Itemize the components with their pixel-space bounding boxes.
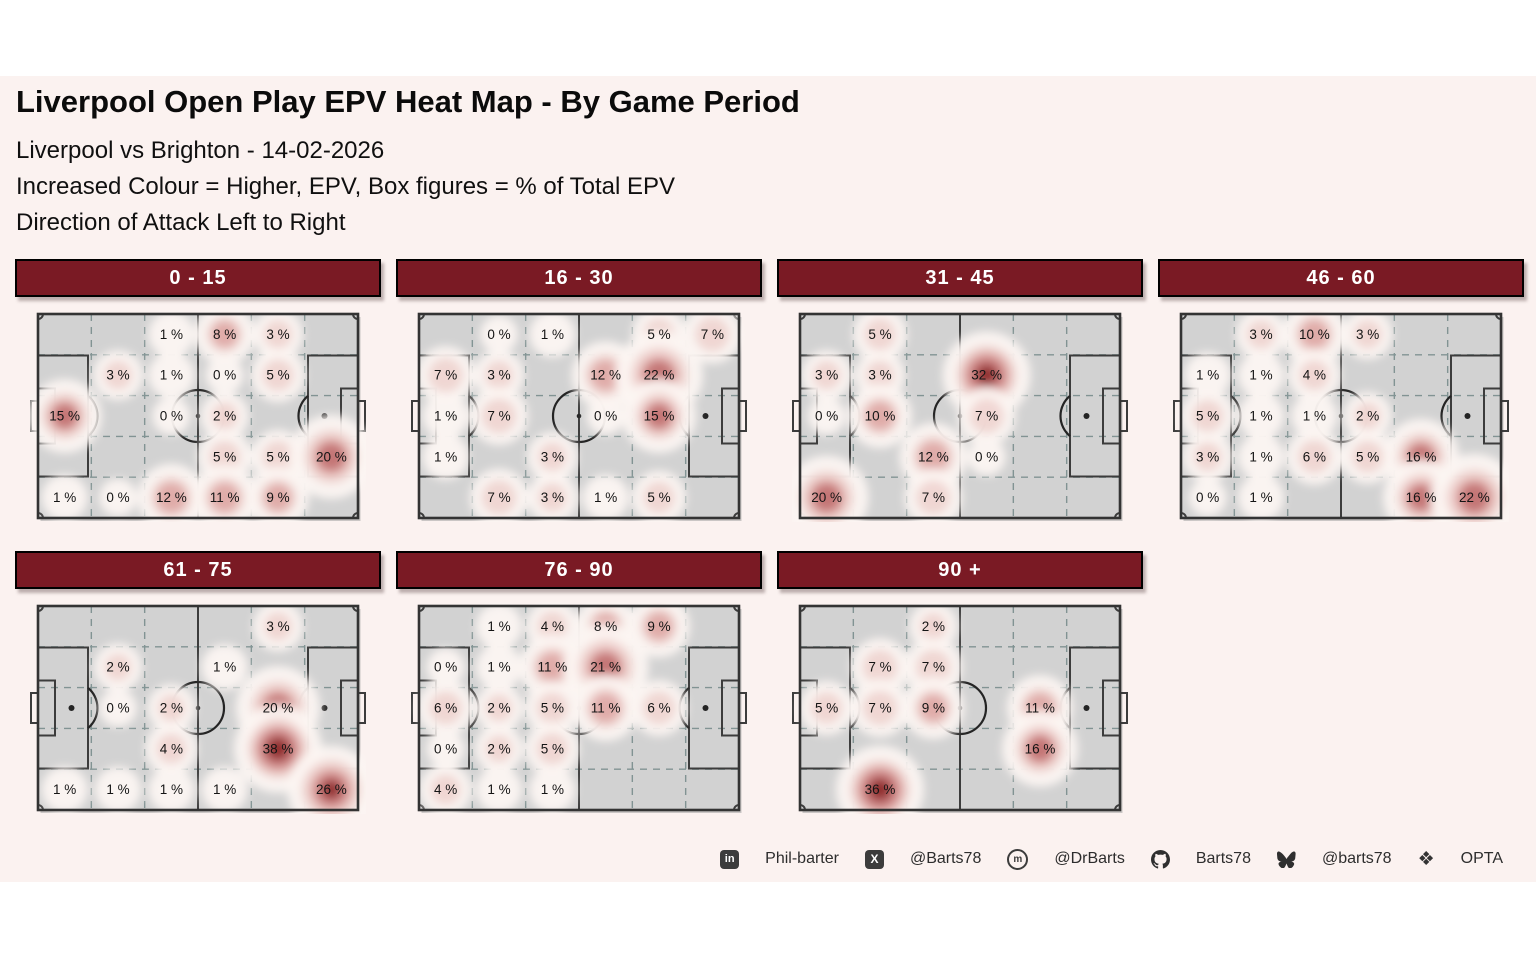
cell-label: 2 % — [106, 660, 129, 675]
cell-label: 5 % — [213, 449, 236, 464]
cell-label: 1 % — [541, 782, 564, 797]
cell-label: 5 % — [266, 368, 289, 383]
cell-label: 1 % — [1249, 490, 1272, 505]
cell-label: 11 % — [537, 660, 567, 675]
subtitle-match: Liverpool vs Brighton - 14-02-2026 — [16, 133, 800, 169]
pitch-container: 2 %7 %7 %5 %7 %9 %11 %16 %36 % — [792, 602, 1128, 814]
period-panel: 61 - 75 3 %2 %1 %0 %2 %20 %4 %38 %1 %1 %… — [15, 551, 381, 814]
cell-label: 1 % — [541, 327, 564, 342]
cell-label: 21 % — [590, 660, 621, 675]
cell-label: 4 % — [1303, 368, 1326, 383]
title-block: Liverpool Open Play EPV Heat Map - By Ga… — [16, 84, 800, 241]
bluesky-icon — [1277, 851, 1296, 868]
pitch-heatmap: 3 %10 %3 %1 %1 %4 %5 %1 %1 %2 %3 %1 %6 %… — [1173, 310, 1509, 522]
linkedin-icon: in — [720, 850, 739, 869]
cell-label: 12 % — [156, 490, 187, 505]
cell-label: 22 % — [644, 368, 675, 383]
cell-label: 1 % — [1303, 409, 1326, 424]
page-title: Liverpool Open Play EPV Heat Map - By Ga… — [16, 84, 800, 120]
cell-label: 5 % — [647, 490, 670, 505]
cell-label: 3 % — [1249, 327, 1272, 342]
pitch-container: 1 %8 %3 %3 %1 %0 %5 %15 %0 %2 %5 %5 %20 … — [30, 310, 366, 522]
cell-label: 9 % — [647, 619, 670, 634]
cell-label: 7 % — [868, 701, 891, 716]
period-header: 90 + — [777, 551, 1143, 589]
period-header: 16 - 30 — [396, 259, 762, 297]
cell-label: 22 % — [1459, 490, 1490, 505]
cell-label: 5 % — [815, 701, 838, 716]
footer-handle: @Barts78 — [910, 850, 981, 868]
cell-label: 1 % — [106, 782, 129, 797]
cell-label: 16 % — [1406, 490, 1437, 505]
cell-label: 3 % — [868, 368, 891, 383]
cell-label: 1 % — [53, 782, 76, 797]
cell-label: 5 % — [541, 701, 564, 716]
cell-label: 11 % — [1025, 701, 1055, 716]
cell-label: 7 % — [434, 368, 457, 383]
cell-label: 16 % — [1406, 449, 1437, 464]
github-icon — [1151, 850, 1170, 869]
cell-label: 0 % — [106, 701, 129, 716]
cell-label: 0 % — [434, 741, 457, 756]
cell-label: 1 % — [594, 490, 617, 505]
period-header: 46 - 60 — [1158, 259, 1524, 297]
cell-label: 16 % — [1025, 741, 1056, 756]
cell-label: 6 % — [647, 701, 670, 716]
cell-label: 7 % — [922, 490, 945, 505]
x-icon: X — [865, 850, 884, 869]
cell-label: 9 % — [266, 490, 289, 505]
footer-handle: @DrBarts — [1054, 850, 1124, 868]
cell-label: 8 % — [594, 619, 617, 634]
cell-label: 3 % — [487, 368, 510, 383]
cell-label: 1 % — [160, 368, 183, 383]
cell-label: 20 % — [316, 449, 347, 464]
cell-label: 0 % — [160, 409, 183, 424]
period-panel: 76 - 90 1 %4 %8 %9 %0 %1 %11 %21 %6 %2 %… — [396, 551, 762, 814]
cell-label: 4 % — [160, 741, 183, 756]
cell-label: 32 % — [971, 368, 1002, 383]
pitch-container: 5 %3 %3 %32 %0 %10 %7 %12 %0 %20 %7 % — [792, 310, 1128, 522]
cell-label: 3 % — [266, 619, 289, 634]
pitch-container: 3 %10 %3 %1 %1 %4 %5 %1 %1 %2 %3 %1 %6 %… — [1173, 310, 1509, 522]
cell-label: 10 % — [865, 409, 896, 424]
pitch-container: 3 %2 %1 %0 %2 %20 %4 %38 %1 %1 %1 %1 %26… — [30, 602, 366, 814]
figure-background: Liverpool Open Play EPV Heat Map - By Ga… — [0, 76, 1536, 882]
period-header: 76 - 90 — [396, 551, 762, 589]
cell-label: 1 % — [53, 490, 76, 505]
cell-label: 8 % — [213, 327, 236, 342]
period-panel: 90 + 2 %7 %7 %5 %7 %9 %11 %16 %36 % — [777, 551, 1143, 814]
cell-label: 6 % — [1303, 449, 1326, 464]
cell-label: 26 % — [316, 782, 347, 797]
cell-label: 1 % — [1249, 368, 1272, 383]
cell-label: 3 % — [541, 449, 564, 464]
cell-label: 0 % — [213, 368, 236, 383]
cell-label: 3 % — [1356, 327, 1379, 342]
cell-label: 9 % — [922, 701, 945, 716]
cell-label: 20 % — [263, 701, 294, 716]
cell-label: 15 % — [644, 409, 675, 424]
cell-label: 1 % — [434, 409, 457, 424]
cell-label: 2 % — [922, 619, 945, 634]
period-panel: 31 - 45 5 %3 %3 %32 %0 %10 %7 %12 %0 %20… — [777, 259, 1143, 522]
cell-label: 4 % — [434, 782, 457, 797]
footer-handle: Barts78 — [1196, 850, 1251, 868]
cell-label: 3 % — [815, 368, 838, 383]
cell-label: 1 % — [213, 660, 236, 675]
pitch-container: 0 %1 %5 %7 %7 %3 %12 %22 %1 %7 %0 %15 %1… — [411, 310, 747, 522]
cell-label: 5 % — [647, 327, 670, 342]
cell-label: 6 % — [434, 701, 457, 716]
cell-label: 12 % — [590, 368, 621, 383]
cell-label: 7 % — [922, 660, 945, 675]
cell-label: 12 % — [918, 449, 949, 464]
cell-label: 3 % — [266, 327, 289, 342]
period-panel: 16 - 30 0 %1 %5 %7 %7 %3 %12 %22 %1 %7 %… — [396, 259, 762, 522]
cell-label: 1 % — [487, 619, 510, 634]
mastodon-icon: m — [1007, 849, 1028, 870]
cell-label: 5 % — [541, 741, 564, 756]
cell-label: 7 % — [975, 409, 998, 424]
cell-label: 1 % — [160, 327, 183, 342]
pitch-heatmap: 1 %8 %3 %3 %1 %0 %5 %15 %0 %2 %5 %5 %20 … — [30, 310, 366, 522]
pitch-container: 1 %4 %8 %9 %0 %1 %11 %21 %6 %2 %5 %11 %6… — [411, 602, 747, 814]
cell-label: 0 % — [1196, 490, 1219, 505]
cell-label: 7 % — [701, 327, 724, 342]
pitch-heatmap: 2 %7 %7 %5 %7 %9 %11 %16 %36 % — [792, 602, 1128, 814]
cell-label: 1 % — [487, 660, 510, 675]
cell-label: 2 % — [487, 741, 510, 756]
cell-label: 0 % — [975, 449, 998, 464]
footer-handle: @barts78 — [1322, 850, 1392, 868]
cell-label: 36 % — [865, 782, 896, 797]
dropbox-icon: ❖ — [1418, 850, 1435, 869]
period-header: 31 - 45 — [777, 259, 1143, 297]
cell-label: 1 % — [1249, 409, 1272, 424]
cell-label: 1 % — [1249, 449, 1272, 464]
cell-label: 11 % — [591, 701, 621, 716]
period-header: 0 - 15 — [15, 259, 381, 297]
cell-label: 20 % — [811, 490, 842, 505]
cell-label: 7 % — [868, 660, 891, 675]
cell-label: 3 % — [541, 490, 564, 505]
cell-label: 1 % — [1196, 368, 1219, 383]
subtitle-direction: Direction of Attack Left to Right — [16, 205, 800, 241]
cell-label: 1 % — [487, 782, 510, 797]
cell-label: 0 % — [434, 660, 457, 675]
pitch-heatmap: 1 %4 %8 %9 %0 %1 %11 %21 %6 %2 %5 %11 %6… — [411, 602, 747, 814]
cell-label: 5 % — [1196, 409, 1219, 424]
cell-label: 5 % — [266, 449, 289, 464]
cell-label: 0 % — [487, 327, 510, 342]
pitch-heatmap: 5 %3 %3 %32 %0 %10 %7 %12 %0 %20 %7 % — [792, 310, 1128, 522]
pitch-heatmap: 0 %1 %5 %7 %7 %3 %12 %22 %1 %7 %0 %15 %1… — [411, 310, 747, 522]
cell-label: 4 % — [541, 619, 564, 634]
cell-label: 0 % — [594, 409, 617, 424]
cell-label: 1 % — [213, 782, 236, 797]
cell-label: 38 % — [263, 741, 294, 756]
period-panel: 46 - 60 3 %10 %3 %1 %1 %4 %5 %1 %1 %2 %3… — [1158, 259, 1524, 522]
cell-label: 1 % — [434, 449, 457, 464]
subtitle-block: Liverpool vs Brighton - 14-02-2026 Incre… — [16, 133, 800, 241]
cell-label: 0 % — [815, 409, 838, 424]
footer-credits: inPhil-barterX@Barts78m@DrBartsBarts78@b… — [720, 848, 1503, 870]
cell-label: 7 % — [487, 409, 510, 424]
cell-label: 0 % — [106, 490, 129, 505]
cell-label: 15 % — [49, 409, 80, 424]
period-panel: 0 - 15 1 %8 %3 %3 %1 %0 %5 %15 %0 %2 %5 … — [15, 259, 381, 522]
cell-label: 1 % — [160, 782, 183, 797]
cell-label: 2 % — [213, 409, 236, 424]
period-header: 61 - 75 — [15, 551, 381, 589]
cell-label: 11 % — [210, 490, 240, 505]
cell-label: 2 % — [487, 701, 510, 716]
cell-label: 10 % — [1299, 327, 1330, 342]
cell-label: 7 % — [487, 490, 510, 505]
subtitle-legend: Increased Colour = Higher, EPV, Box figu… — [16, 169, 800, 205]
footer-handle: Phil-barter — [765, 850, 839, 868]
cell-label: 5 % — [1356, 449, 1379, 464]
cell-label: 2 % — [160, 701, 183, 716]
cell-label: 3 % — [1196, 449, 1219, 464]
cell-label: 3 % — [106, 368, 129, 383]
footer-handle: OPTA — [1461, 850, 1503, 868]
cell-label: 2 % — [1356, 409, 1379, 424]
cell-label: 5 % — [868, 327, 891, 342]
pitch-heatmap: 3 %2 %1 %0 %2 %20 %4 %38 %1 %1 %1 %1 %26… — [30, 602, 366, 814]
